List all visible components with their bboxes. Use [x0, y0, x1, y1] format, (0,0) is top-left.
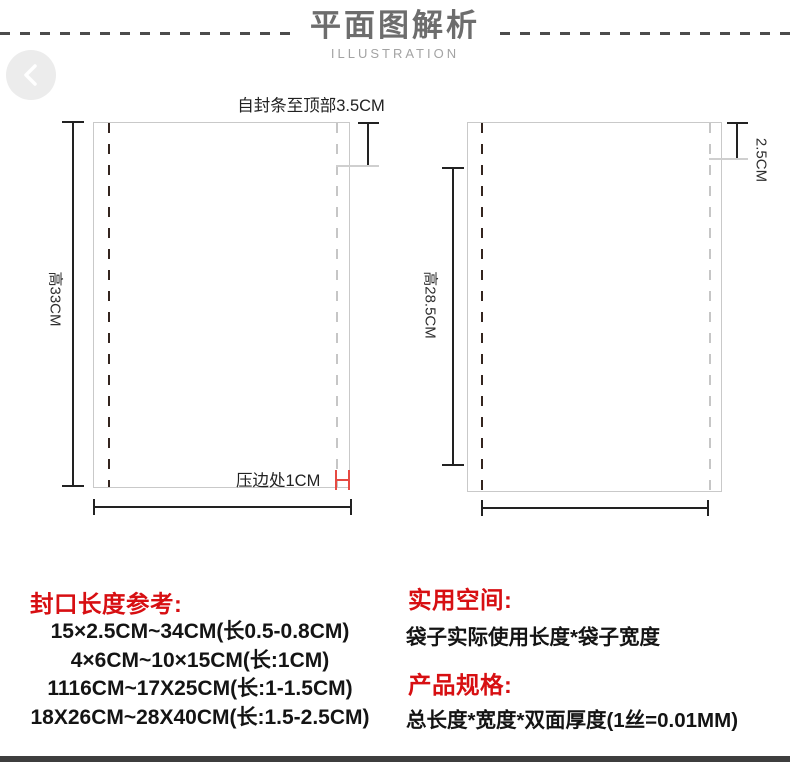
left-bag-height-dim-bottom-cap [62, 485, 84, 487]
right-bag-press-edge-dashed-line [709, 123, 711, 491]
seal-reference-line: 4×6CM~10×15CM(长:1CM) [6, 647, 394, 676]
left-bag-press-edge-dashed-line [336, 123, 338, 487]
left-bag-seal-dim-line [367, 123, 369, 166]
left-bag-width-dim-line [93, 506, 352, 508]
chevron-left-icon [20, 62, 42, 88]
right-bag-height-dim-line [452, 168, 454, 465]
right-bag-width-dim-right-tick [707, 500, 709, 516]
left-bag-seal-distance-label: 自封条至顶部3.5CM [192, 92, 430, 116]
seal-reference-line: 15×2.5CM~34CM(长0.5-0.8CM) [6, 618, 394, 647]
page-title: 平面图解析 [310, 6, 480, 46]
right-bag-zip-dim-bottom-cap [709, 158, 748, 160]
seal-reference-line: 1116CM~17X25CM(长:1-1.5CM) [6, 675, 394, 704]
press-edge-red-mark-bar [335, 479, 350, 481]
right-bag-left-seam-dashed-line [481, 123, 483, 491]
back-button[interactable] [6, 50, 56, 100]
right-bag-height-dim-bottom-cap [442, 464, 464, 466]
right-bag-zip-label: 2.5CM [753, 138, 770, 182]
seal-length-reference-list: 15×2.5CM~34CM(长0.5-0.8CM) 4×6CM~10×15CM(… [6, 618, 394, 732]
product-spec-text: 总长度*宽度*双面厚度(1丝=0.01MM) [406, 703, 738, 733]
seal-length-reference-heading: 封口长度参考: [30, 585, 182, 619]
left-bag-outline [93, 122, 350, 488]
page-subtitle: ILLUSTRATION [310, 46, 480, 62]
left-bag-left-seam-dashed-line [108, 123, 110, 487]
left-bag-height-label: 高33CM [46, 271, 67, 326]
bottom-divider-bar [0, 756, 790, 762]
right-bag-height-label: 高28.5CM [421, 271, 442, 339]
page-title-block: 平面图解析 ILLUSTRATION [294, 6, 496, 62]
right-bag-outline [467, 122, 722, 492]
left-bag-width-dim-right-tick [350, 499, 352, 515]
left-bag-seal-dim-bottom-cap [336, 165, 379, 167]
product-spec-heading: 产品规格: [408, 666, 512, 700]
seal-reference-line: 18X26CM~28X40CM(长:1.5-2.5CM) [6, 704, 394, 733]
left-bag-height-dim-line [72, 122, 74, 486]
page: 平面图解析 ILLUSTRATION 自封条至顶部3.5CM 高33CM 压边处… [0, 0, 790, 762]
usable-space-heading: 实用空间: [408, 581, 512, 615]
left-bag-press-edge-label: 压边处1CM [236, 467, 320, 491]
right-bag-width-dim-line [481, 507, 709, 509]
right-bag-zip-dim-line [736, 123, 738, 158]
usable-space-text: 袋子实际使用长度*袋子宽度 [406, 620, 660, 650]
